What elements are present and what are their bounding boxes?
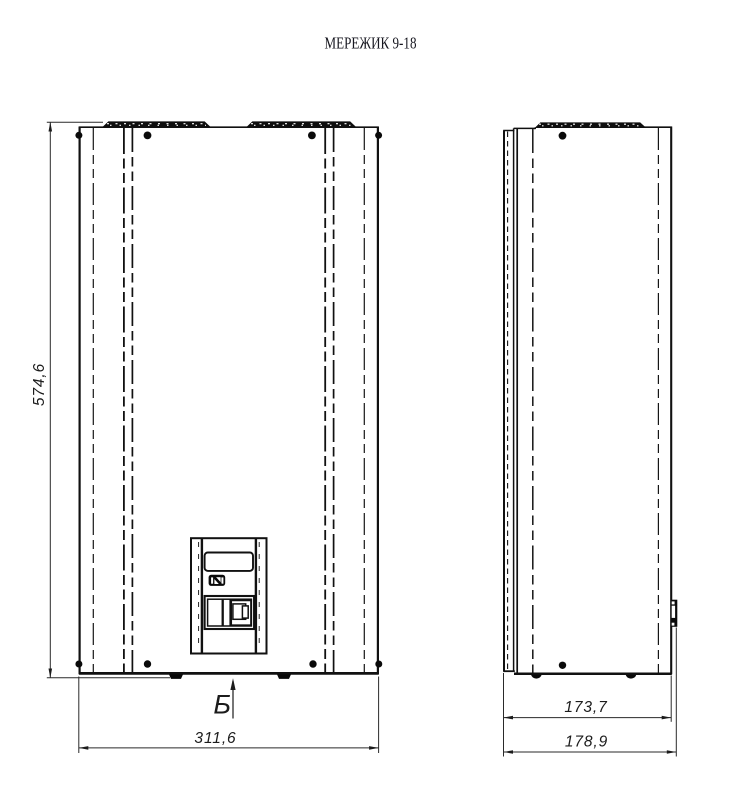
svg-text:МЕРЕЖИК 9-18: МЕРЕЖИК 9-18	[325, 34, 417, 53]
svg-text:Б: Б	[213, 690, 231, 720]
svg-text:178,9: 178,9	[565, 733, 608, 750]
svg-text:173,7: 173,7	[564, 699, 608, 716]
svg-text:311,6: 311,6	[194, 730, 236, 747]
svg-text:574,6: 574,6	[31, 363, 48, 406]
